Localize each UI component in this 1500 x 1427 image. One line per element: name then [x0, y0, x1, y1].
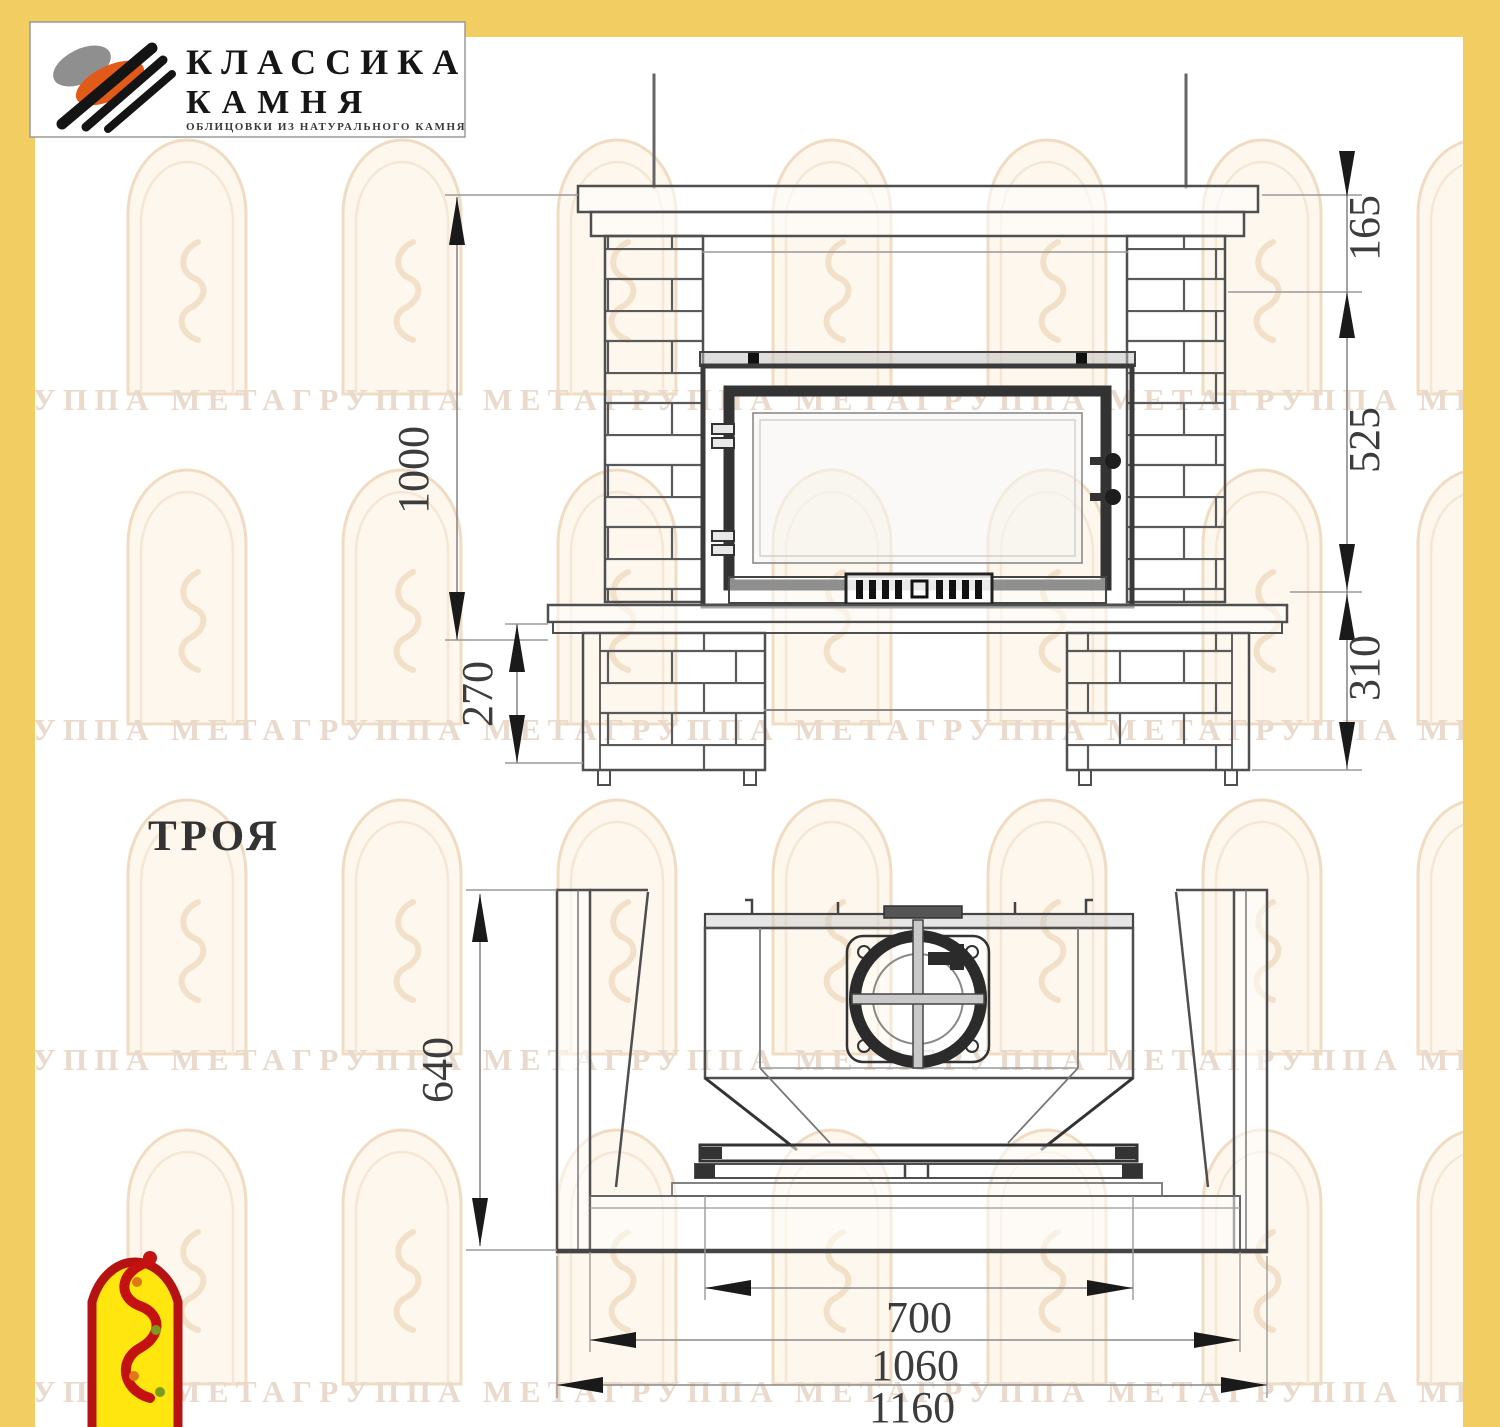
brand-logo-panel: КЛАССИКА КАМНЯ ОБЛИЦОВКИ ИЗ НАТУРАЛЬНОГО… [30, 22, 467, 137]
firebox-bolt-left [748, 353, 759, 364]
brand-name-line1: КЛАССИКА [186, 42, 467, 82]
drawing-canvas: ГРУППА МЕТАГРУППА МЕТАГРУППА МЕТАГРУППА … [0, 0, 1500, 1427]
brand-name-line2: КАМНЯ [186, 84, 373, 121]
plan-front-strip [695, 1164, 1142, 1178]
door-glass [753, 413, 1082, 563]
scanned-fireplace-drawing-page: ГРУППА МЕТАГРУППА МЕТАГРУППА МЕТАГРУППА … [0, 0, 1500, 1427]
plan-front-slab [590, 1196, 1240, 1250]
watermark-text-row: ГРУППА МЕТАГРУППА МЕТАГРУППА МЕТАГРУППА … [0, 1042, 1500, 1077]
dim-label-top-zone: 165 [1340, 195, 1389, 261]
mantel-shelf [578, 186, 1258, 212]
flue-cross-horizontal [852, 994, 984, 1004]
brick-column-right [1127, 236, 1225, 602]
brick-pedestal-left [583, 633, 765, 770]
dim-label-depth: 640 [413, 1037, 462, 1103]
firebox-bolt-right [1076, 353, 1087, 364]
border-left [0, 0, 35, 1427]
dim-label-base-zone: 310 [1340, 635, 1389, 701]
plan-sill-strip [672, 1183, 1162, 1196]
plan-damper-tab [884, 906, 962, 918]
hearth-shelf-lower [553, 622, 1282, 633]
border-right [1463, 0, 1500, 1427]
plan-front-frame [700, 1145, 1137, 1161]
hearth-shelf [548, 605, 1287, 622]
dim-label-overall-width: 1160 [869, 1383, 955, 1427]
air-grille [846, 574, 992, 604]
brick-column-left [605, 236, 703, 602]
dim-label-firebox-zone: 525 [1340, 407, 1389, 473]
damper-lever-knob [950, 944, 964, 970]
brick-pedestal-right [1067, 633, 1249, 770]
mantel-crown [591, 212, 1244, 236]
brand-tagline: ОБЛИЦОВКИ ИЗ НАТУРАЛЬНОГО КАМНЯ [186, 121, 466, 133]
model-name: ТРОЯ [148, 813, 281, 860]
dim-label-total-height: 1000 [389, 426, 438, 514]
jester-arch-logo-icon [92, 1251, 178, 1427]
watermark-text-row: ГРУППА МЕТАГРУППА МЕТАГРУППА МЕТАГРУППА … [0, 1374, 1500, 1409]
dim-label-firebox-width: 700 [886, 1293, 952, 1342]
dim-label-pedestal-height: 270 [453, 661, 502, 727]
